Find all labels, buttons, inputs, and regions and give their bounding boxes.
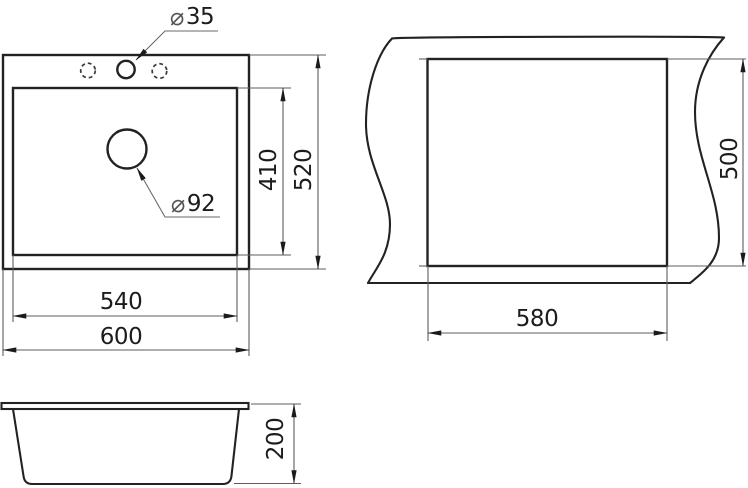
faucet-diameter-label: ⌀35 [150, 4, 234, 30]
cutout-width-dim-label: 580 [495, 306, 579, 332]
drawing-linework [0, 0, 748, 488]
overall-width-dim-label: 600 [79, 324, 163, 350]
drain-diameter-value: 92 [187, 191, 215, 217]
cutout-view [366, 37, 746, 341]
rim-profile-outline [2, 403, 249, 409]
drain-diameter-label: ⌀92 [151, 191, 235, 217]
diameter-symbol: ⌀ [171, 191, 185, 217]
technical-drawing-canvas: ⌀35 ⌀92 410 520 540 600 200 500 580 [0, 0, 748, 488]
optional-hole-left-circle [81, 63, 96, 78]
bowl-profile-outline [13, 409, 239, 484]
bowl-width-dim-label: 540 [79, 289, 163, 315]
optional-hole-right-circle [152, 64, 167, 79]
countertop-top-edge [392, 37, 724, 39]
bowl-depth-dim-label: 410 [256, 128, 282, 212]
faucet-hole-circle [117, 61, 134, 78]
break-line-left [366, 39, 392, 284]
drain-hole-circle [108, 130, 147, 169]
sink-height-dim-label: 200 [263, 397, 289, 481]
profile-view [2, 403, 302, 484]
overall-depth-dim-label: 520 [291, 128, 317, 212]
cutout-opening-outline [428, 59, 668, 266]
faucet-diameter-value: 35 [186, 4, 214, 30]
sink-bowl-outline [13, 88, 237, 255]
cutout-depth-dim-label: 500 [717, 117, 743, 201]
diameter-symbol: ⌀ [170, 4, 184, 30]
